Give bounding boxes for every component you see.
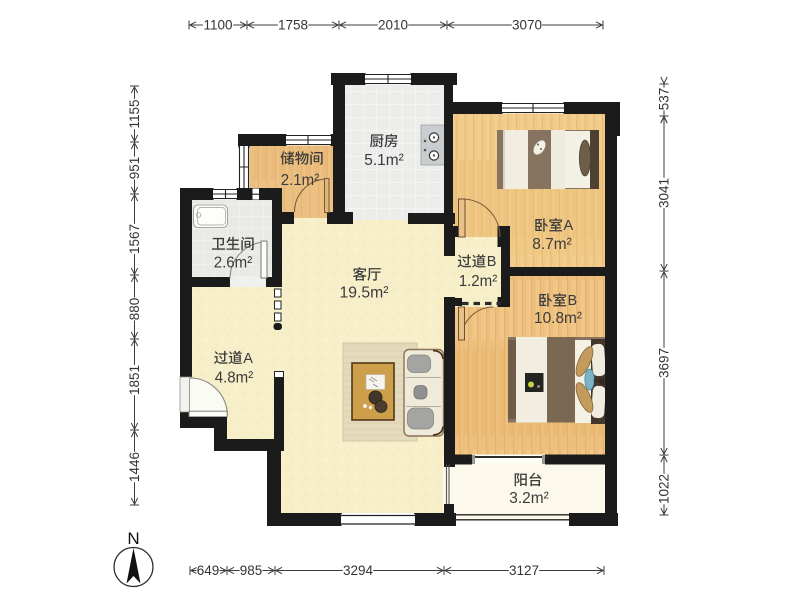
- svg-text:19.5m²: 19.5m²: [340, 285, 390, 302]
- svg-text:3127: 3127: [509, 563, 539, 578]
- svg-text:1155: 1155: [127, 99, 142, 128]
- svg-text:951: 951: [127, 157, 142, 180]
- svg-text:N: N: [127, 529, 139, 548]
- svg-text:649: 649: [197, 563, 220, 578]
- svg-text:1100: 1100: [203, 18, 232, 33]
- svg-text:2.1m²: 2.1m²: [281, 172, 320, 189]
- svg-text:A: A: [564, 218, 574, 234]
- svg-text:1022: 1022: [657, 474, 672, 504]
- svg-text:880: 880: [127, 298, 142, 321]
- svg-text:2.6m²: 2.6m²: [214, 255, 253, 272]
- svg-text:1567: 1567: [127, 224, 142, 254]
- svg-text:4.8m²: 4.8m²: [215, 370, 254, 387]
- svg-text:5.1m²: 5.1m²: [364, 152, 404, 169]
- svg-text:3.2m²: 3.2m²: [509, 490, 549, 507]
- svg-text:3041: 3041: [657, 178, 672, 208]
- svg-text:10.8m²: 10.8m²: [534, 310, 583, 327]
- svg-text:3294: 3294: [343, 563, 374, 578]
- svg-text:3070: 3070: [512, 18, 542, 33]
- svg-text:B: B: [568, 293, 578, 309]
- svg-text:1446: 1446: [127, 452, 142, 482]
- svg-text:2010: 2010: [378, 18, 408, 33]
- svg-text:B: B: [487, 254, 497, 270]
- svg-text:8.7m²: 8.7m²: [532, 236, 572, 253]
- svg-text:537: 537: [657, 88, 672, 111]
- svg-text:1.2m²: 1.2m²: [459, 273, 498, 290]
- svg-text:985: 985: [240, 563, 263, 578]
- svg-text:3697: 3697: [657, 348, 672, 378]
- svg-text:1758: 1758: [278, 18, 308, 33]
- svg-text:1851: 1851: [127, 365, 142, 395]
- svg-text:A: A: [243, 351, 253, 367]
